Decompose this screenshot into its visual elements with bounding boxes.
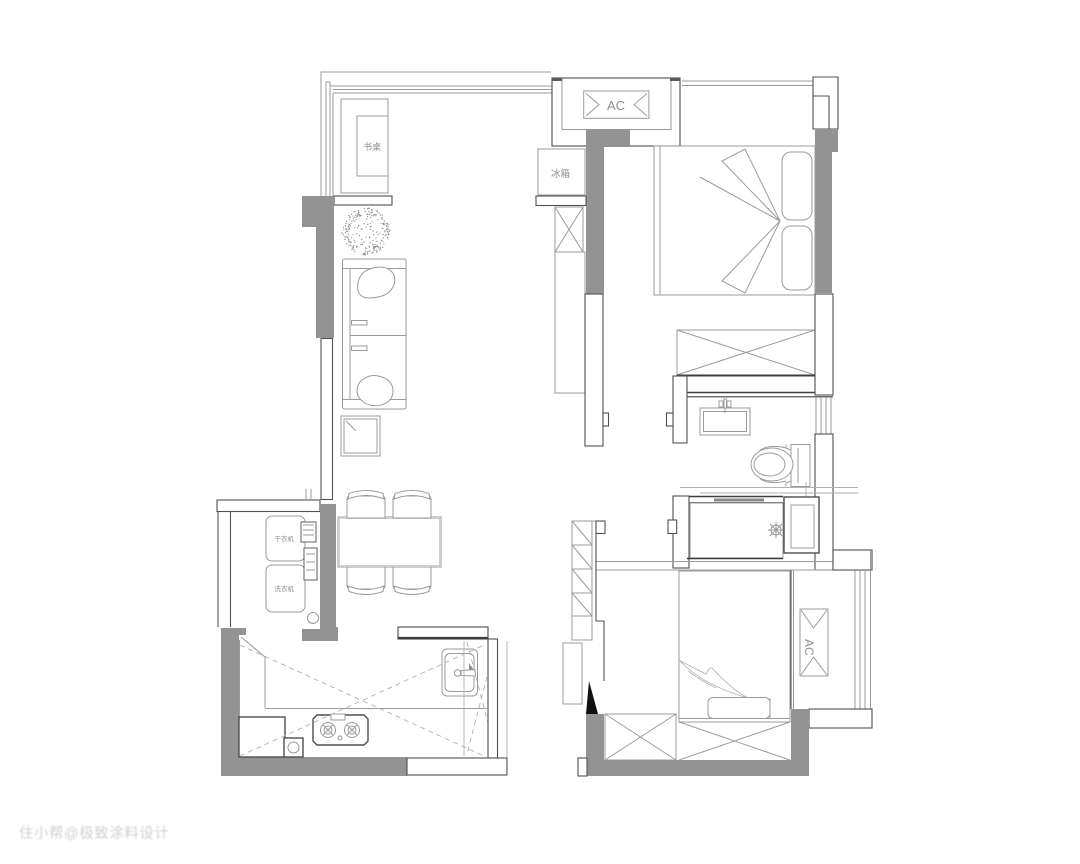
svg-text:AC: AC	[607, 98, 625, 113]
svg-text:住小帮@极致涂料设计: 住小帮@极致涂料设计	[19, 825, 169, 842]
svg-text:书桌: 书桌	[363, 141, 381, 152]
svg-text:冰箱: 冰箱	[551, 168, 570, 180]
svg-text:干衣机: 干衣机	[275, 534, 295, 543]
svg-text:洗衣机: 洗衣机	[275, 584, 295, 593]
svg-text:AC: AC	[802, 639, 816, 656]
